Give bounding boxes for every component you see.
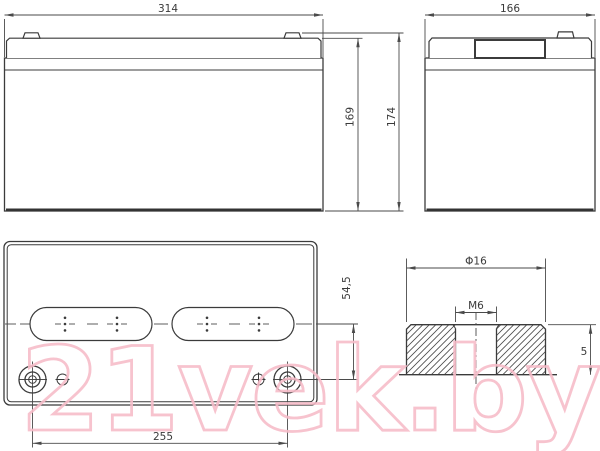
front-view-outline — [5, 33, 324, 211]
total-height-label: 174 — [386, 107, 398, 127]
terminal-offset-label: 54,5 — [341, 276, 353, 299]
terminal-diameter-label: Φ16 — [465, 256, 487, 268]
front-width-label: 314 — [158, 3, 178, 15]
terminal-thread-label: M6 — [468, 300, 484, 312]
drawing-canvas: 314 169 174 — [0, 0, 600, 451]
watermark-text: 21vek.by — [20, 323, 600, 451]
front-terminal-tab-right — [284, 33, 301, 38]
case-height-label: 169 — [345, 107, 357, 127]
front-terminal-tab-left — [23, 33, 40, 38]
dim-case-height: 169 — [322, 38, 363, 211]
side-width-label: 166 — [500, 3, 520, 15]
side-view: 166 — [425, 3, 595, 211]
side-terminal-tab — [557, 32, 574, 38]
side-vent-cover — [475, 40, 545, 58]
battery-technical-drawing: 314 169 174 — [0, 0, 600, 451]
front-view: 314 169 174 — [5, 3, 404, 211]
side-view-outline — [425, 32, 595, 211]
